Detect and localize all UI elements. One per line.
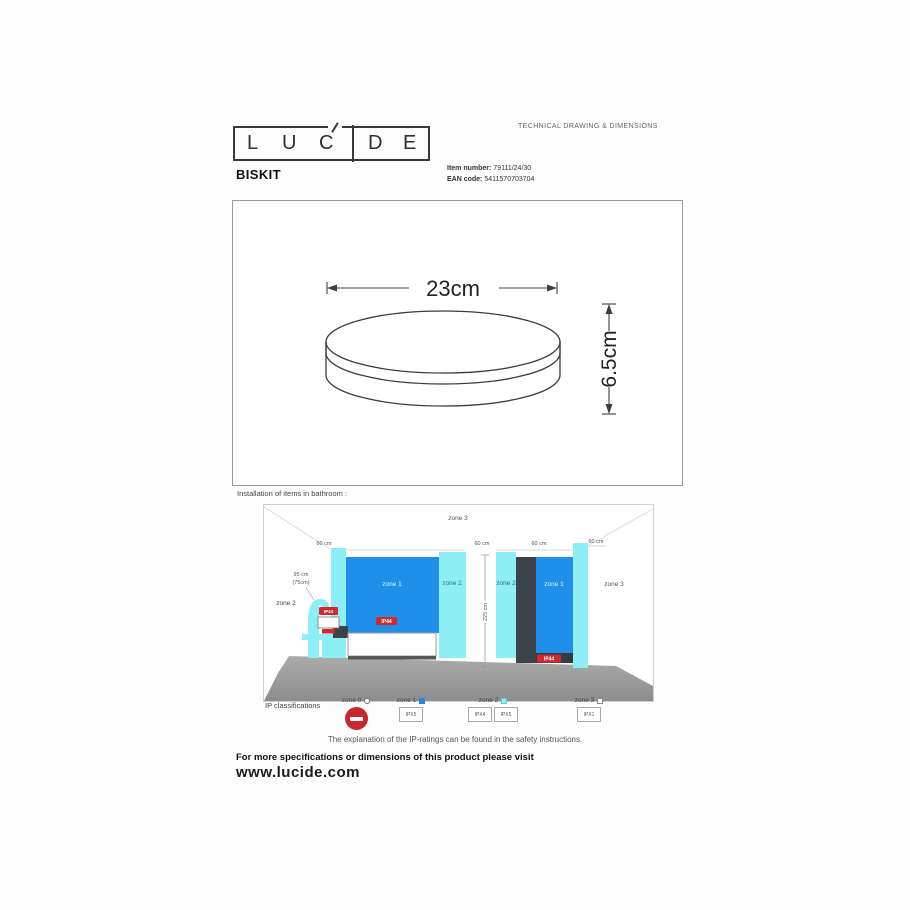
lucide-logo: L U C D E [233, 126, 430, 161]
ip-ratings-note: The explanation of the IP-ratings can be… [0, 735, 910, 744]
bathroom-zones-diagram: IP44 IP44 225 cm [263, 504, 654, 702]
height-dimension-225: 225 cm [481, 555, 489, 667]
legend-zone3: zone 3 IPX1 [566, 697, 612, 722]
zone0-legend-label: zone 0 [342, 697, 362, 704]
zone3-swatch-icon [597, 698, 603, 704]
dim-225-label: 225 cm [483, 603, 489, 621]
legend-zone1: zone 1 IPX5 [388, 697, 434, 722]
zone0-swatch-icon [364, 698, 370, 704]
zone3-legend-label: zone 3 [575, 697, 595, 704]
zone1-label: zone 1 [382, 581, 402, 588]
bottom-arrowhead [606, 404, 613, 414]
logo-letter: C [319, 128, 333, 159]
zone1-legend-label: zone 1 [397, 697, 417, 704]
left-arrowhead [327, 285, 337, 292]
logo-letter: U [282, 128, 296, 159]
legend-zone0: zone 0 [334, 697, 378, 730]
width-dimension-label: 23cm [426, 276, 480, 301]
zone2-label: zone 2 [276, 600, 296, 607]
technical-drawing-frame: 23cm 6.5cm [232, 200, 683, 486]
zone2-legend-label: zone 2 [479, 697, 499, 704]
ean-code-row: EAN code: 5411570703704 [447, 174, 534, 185]
no-entry-icon [345, 707, 368, 730]
ip44-badge-label: IP44 [324, 609, 334, 614]
logo-i-bar [352, 125, 354, 162]
zone1-swatch-icon [419, 698, 425, 704]
logo-letter: L [247, 128, 258, 159]
zone2-rating: IPX5 [494, 707, 518, 722]
dim-60-label: 60 cm [317, 541, 332, 547]
ceiling-lamp-outline [326, 311, 560, 406]
item-number-value: 79111/24/30 [493, 165, 531, 172]
zone3-top-label: zone 3 [448, 515, 468, 522]
item-number-label: Item number: [447, 165, 491, 172]
dim-60-label: 60 cm [532, 541, 547, 547]
zone1-label: zone 1 [544, 581, 564, 588]
ip-chip [322, 629, 335, 634]
height-dimension-label: 6.5cm [598, 330, 621, 387]
logo-accent-mark [328, 122, 342, 132]
legend-zone2: zone 2 IPX4 IPX5 [460, 697, 526, 722]
washbasin [318, 617, 339, 628]
footer-visit-line: For more specifications or dimensions of… [236, 752, 534, 763]
zone2-label: zone 2 [496, 580, 516, 587]
zone2-rating: IPX4 [468, 707, 492, 722]
ip44-badge-label: IP44 [544, 657, 555, 663]
logo-letter: E [403, 128, 416, 159]
dim-95-label: 95 cm [294, 572, 309, 578]
bathtub-area: IP44 [331, 548, 466, 660]
logo-letter: D [368, 128, 382, 159]
zone3-rating: IPX1 [577, 707, 601, 722]
item-number-row: Item number: 79111/24/30 [447, 163, 534, 174]
website-url: www.lucide.com [236, 764, 360, 781]
dim-60-label: 60 cm [589, 539, 604, 545]
dim-60-label: 60 cm [475, 541, 490, 547]
top-arrowhead [606, 304, 613, 314]
product-meta: Item number: 79111/24/30 EAN code: 54115… [447, 163, 534, 185]
ip44-badge-label: IP44 [381, 619, 392, 625]
bathroom-scene: IP44 IP44 225 cm [264, 505, 653, 701]
bathroom-floor [264, 656, 653, 701]
bathtub [348, 633, 436, 656]
doc-type-title: TECHNICAL DRAWING & DIMENSIONS [518, 123, 658, 130]
zone1-rating: IPX5 [399, 707, 423, 722]
shower-area: IP44 [496, 543, 588, 668]
ean-code-label: EAN code: [447, 176, 482, 183]
zone3-label: zone 3 [604, 581, 624, 588]
right-arrowhead [547, 285, 557, 292]
product-name: BISKIT [236, 167, 281, 182]
installation-heading: Installation of items in bathroom : [237, 489, 347, 498]
zone2-swatch-icon [501, 698, 507, 704]
lamp-drawing: 23cm 6.5cm [233, 201, 682, 485]
dim-75-label: (75cm) [292, 580, 309, 586]
ip-classifications-title: IP classifications [265, 701, 320, 710]
ean-code-value: 5411570703704 [484, 176, 534, 183]
zone2-label: zone 2 [442, 580, 462, 587]
spec-sheet-page: L U C D E TECHNICAL DRAWING & DIMENSIONS… [0, 0, 910, 910]
